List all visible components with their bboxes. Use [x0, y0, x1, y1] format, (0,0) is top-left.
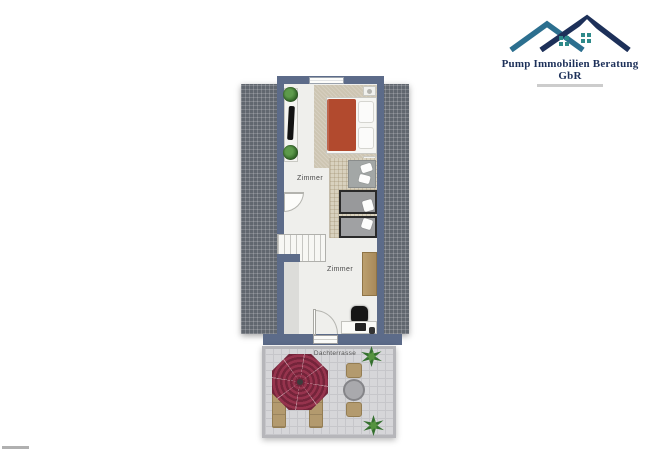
room-label-upper: Zimmer [290, 175, 330, 182]
watermark-illegible [2, 446, 29, 449]
patio-chair [346, 402, 362, 417]
patio-table [343, 379, 365, 401]
nightstand [363, 86, 376, 96]
company-logo: Pump Immobilien Beratung GbR [495, 14, 645, 87]
bathtub-unit [339, 190, 377, 214]
bed-pillow [358, 127, 374, 149]
knee-wall-floor-strip [284, 262, 299, 334]
floorplan-screenshot: Pump Immobilien Beratung GbR Zimmer Zimm… [0, 0, 650, 459]
logo-company-name: Pump Immobilien Beratung GbR [495, 58, 645, 82]
logo-houses-icon [507, 14, 633, 52]
towel-icon [358, 174, 371, 184]
bed-pillow [358, 101, 374, 123]
fixture-icon [362, 199, 375, 212]
plant-icon [283, 145, 298, 160]
wardrobe [362, 252, 377, 296]
parasol-pole [297, 379, 303, 385]
terrace-door-leaf [313, 309, 316, 335]
top-window-icon [309, 77, 344, 84]
terrace-door-threshold [313, 335, 338, 344]
shower-unit [348, 160, 376, 188]
wc-unit [339, 216, 377, 238]
stair-wall-stub [277, 254, 300, 262]
room-label-lower: Zimmer [320, 266, 360, 273]
towel-icon [360, 162, 373, 173]
plant-icon [283, 87, 298, 102]
laptop-icon [355, 323, 366, 331]
bed-duvet [327, 99, 356, 151]
terrace-label: Dachterrasse [305, 350, 365, 357]
desk-accessory [369, 327, 375, 334]
fixture-icon [361, 218, 374, 231]
logo-tagline-illegible [537, 84, 603, 87]
patio-chair [346, 363, 362, 378]
